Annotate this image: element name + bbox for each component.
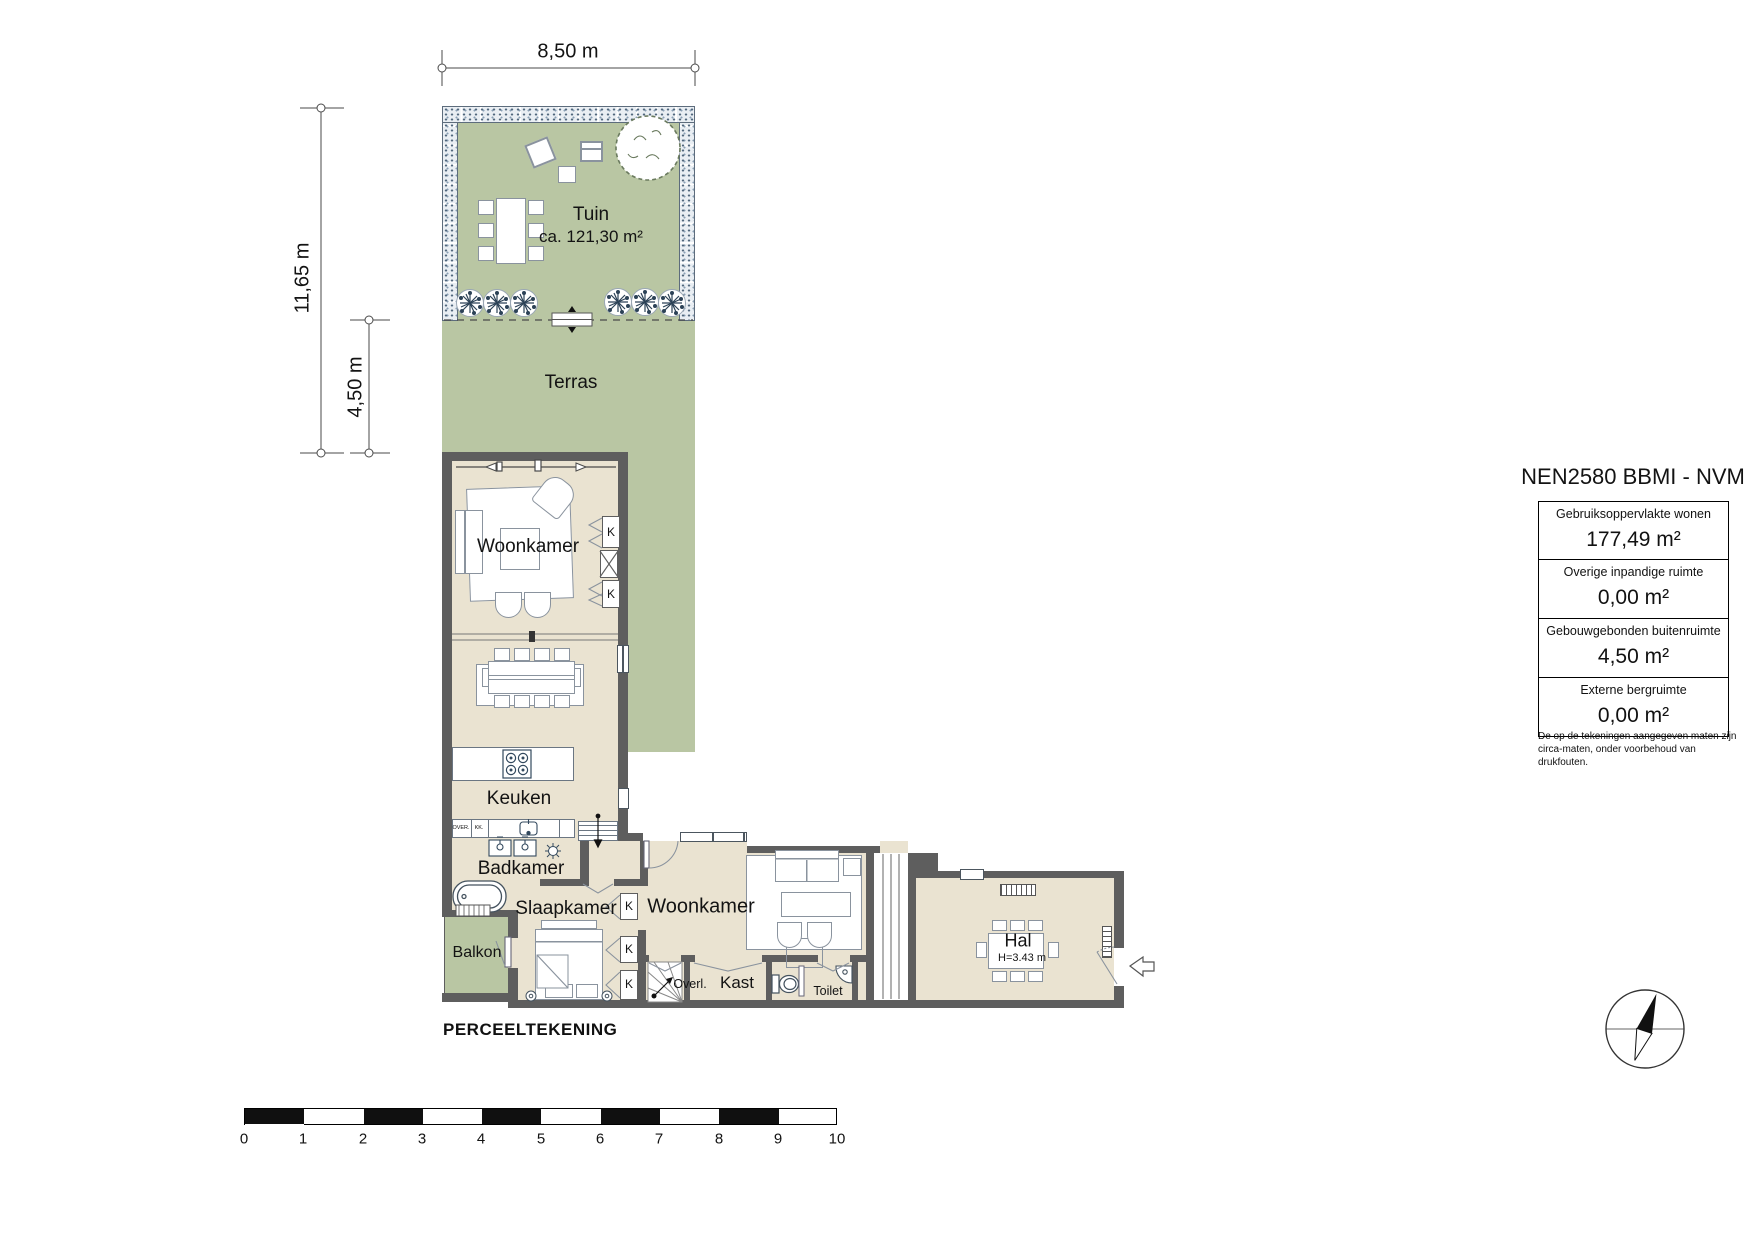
- wall-top-upper: [442, 452, 628, 461]
- wall-strip-a: [646, 955, 649, 962]
- wall-balcony-bottom: [442, 993, 518, 1002]
- legend-title: NEN2580 BBMI - NVM: [1521, 464, 1745, 490]
- window-band-living2: [680, 832, 747, 842]
- room-label-hall: Hal: [1004, 931, 1031, 952]
- hall-chair: [1010, 971, 1025, 982]
- terrace-label: Terras: [545, 372, 598, 394]
- scale-segment: [364, 1109, 423, 1124]
- scale-segment: [719, 1109, 778, 1124]
- scale-segment: [245, 1109, 304, 1124]
- hall-chair: [976, 942, 987, 958]
- scale-tick: 2: [359, 1131, 367, 1148]
- wall-strip-d: [850, 955, 866, 962]
- living2-coffee-table: [781, 892, 851, 917]
- garden-terrace-area: [442, 106, 695, 455]
- scale-tick: 5: [537, 1131, 545, 1148]
- scale-segment: [660, 1109, 719, 1124]
- row-value: 0,00 m²: [1539, 579, 1728, 610]
- scale-segment: [541, 1109, 600, 1124]
- wall-passage-right: [640, 841, 648, 886]
- bed-pillow: [545, 984, 573, 998]
- window-hall: [960, 869, 984, 880]
- wall-bath-bed-a: [540, 879, 582, 886]
- row-label: Overige inpandige ruimte: [1539, 560, 1728, 579]
- hall-radiator: [1102, 926, 1112, 958]
- dining-chair: [534, 648, 550, 661]
- wall-strip-b: [681, 955, 695, 962]
- scale-bar: [244, 1108, 837, 1125]
- dining-table: [488, 661, 575, 694]
- stair-strip: [874, 853, 908, 1000]
- oven-label: OVER.: [452, 825, 469, 831]
- fridge-label: KK.: [475, 825, 484, 831]
- scale-tick: 3: [418, 1131, 426, 1148]
- closet-k-label: K: [607, 525, 615, 539]
- scale-tick: 7: [655, 1131, 663, 1148]
- garden-table: [496, 198, 526, 264]
- dim-top-width: 8,50 m: [537, 41, 598, 64]
- living2-side-table: [843, 858, 861, 876]
- dining-chair: [494, 695, 510, 708]
- scale-tick: 9: [774, 1131, 782, 1148]
- scale-tick: 4: [477, 1131, 485, 1148]
- mask-above-hall: [908, 841, 1124, 871]
- closet-k-label: K: [607, 587, 615, 601]
- wall-wing-right-b: [1114, 986, 1124, 1008]
- compass-icon: [1606, 990, 1684, 1068]
- wall-kcolumn-right: [638, 930, 646, 1008]
- disclaimer-line2: circa-maten, onder voorbehoud van drukfo…: [1538, 744, 1696, 768]
- table-row: Externe bergruimte 0,00 m²: [1538, 678, 1729, 737]
- table-row: Gebruiksoppervlakte wonen 177,49 m²: [1538, 501, 1729, 560]
- dim-terrace-depth: 4,50 m: [345, 356, 368, 417]
- kitchen-steps: [578, 821, 618, 841]
- table-row: Gebouwgebonden buitenruimte 4,50 m²: [1538, 619, 1729, 678]
- scale-segment: [601, 1109, 660, 1124]
- dining-chair: [554, 695, 570, 708]
- kitchen-island: [452, 747, 574, 781]
- hall-chair: [1048, 942, 1059, 958]
- room-label-living2: Woonkamer: [647, 896, 754, 919]
- garden-bbq: [580, 141, 603, 162]
- bed-pillow: [576, 984, 598, 998]
- room-label-bedroom: Slaapkamer: [515, 898, 616, 920]
- scale-tick: 8: [715, 1131, 723, 1148]
- garden-chair: [528, 200, 544, 215]
- wall-kast-right: [766, 962, 772, 1008]
- disclaimer-line1: De op de tekeningen aangegeven maten zij…: [1538, 731, 1736, 742]
- wall-balcony-right-a: [508, 917, 518, 938]
- plan-linework: [0, 0, 1754, 1239]
- entrance-gap: [1114, 948, 1124, 986]
- bed-headshelf: [541, 920, 597, 929]
- wall-wing-right-a: [1114, 871, 1124, 948]
- wall-left-upper: [442, 452, 452, 910]
- kitchen-counter: [452, 819, 575, 838]
- room-label-toilet: Toilet: [813, 984, 842, 998]
- row-label: Externe bergruimte: [1539, 678, 1728, 697]
- row-label: Gebouwgebonden buitenruimte: [1539, 619, 1728, 638]
- floorplan-canvas: 8,50 m 11,65 m 4,50 m Tuin ca. 121,30 m²…: [0, 0, 1754, 1239]
- row-value: 4,50 m²: [1539, 638, 1728, 669]
- hall-chair: [1010, 920, 1025, 931]
- room-label-kitchen: Keuken: [487, 788, 551, 810]
- living2-sofa: [775, 850, 839, 882]
- scale-segment: [482, 1109, 541, 1124]
- terrace-right-strip: [628, 455, 695, 752]
- hall-chair: [1028, 971, 1043, 982]
- dining-chair: [514, 695, 530, 708]
- shaft-box: [600, 550, 618, 578]
- window-kitchen: [618, 788, 629, 809]
- garden-chair: [478, 246, 494, 261]
- nen2580-table: Gebruiksoppervlakte wonen 177,49 m² Over…: [1538, 501, 1729, 737]
- dining-table-end: [574, 668, 581, 687]
- living2-chair: [807, 922, 832, 948]
- garden-chair: [528, 246, 544, 261]
- hedge-right: [679, 122, 695, 321]
- wall-stairs-right: [908, 853, 916, 1008]
- room-label-living1: Woonkamer: [477, 536, 579, 558]
- living2-chair: [777, 922, 802, 948]
- hall-chair: [1028, 920, 1043, 931]
- scale-segment: [423, 1109, 482, 1124]
- room-label-balcony: Balkon: [453, 944, 502, 962]
- wall-bottom: [508, 1000, 1124, 1008]
- wall-balcony-top: [442, 910, 518, 917]
- row-value: 177,49 m²: [1539, 521, 1728, 552]
- living1-chair: [524, 592, 551, 618]
- room-label-bathroom: Badkamer: [478, 858, 565, 880]
- row-value: 0,00 m²: [1539, 697, 1728, 728]
- garden-chair: [478, 223, 494, 238]
- garden-area-label: ca. 121,30 m²: [539, 227, 643, 247]
- scale-segment: [245, 1124, 304, 1139]
- dining-chair: [494, 648, 510, 661]
- wall-stairs-left: [866, 846, 874, 1008]
- scale-tick: 0: [240, 1131, 248, 1148]
- closet-k-label: K: [625, 942, 633, 956]
- dining-chair: [534, 695, 550, 708]
- table-row: Overige inpandige ruimte 0,00 m²: [1538, 560, 1729, 619]
- hall-doormat: [1000, 884, 1036, 896]
- dining-chair: [514, 648, 530, 661]
- closet-k-label: K: [625, 977, 633, 991]
- scale-tick: 6: [596, 1131, 604, 1148]
- wall-wingtop-a: [628, 833, 643, 841]
- scale-tick: 10: [829, 1131, 846, 1148]
- garden-side-table: [558, 166, 576, 183]
- hall-chair: [992, 920, 1007, 931]
- window-dining: [617, 645, 629, 673]
- closet-k-label: K: [625, 899, 633, 913]
- garden-chair: [478, 200, 494, 215]
- legend-disclaimer: De op de tekeningen aangegeven maten zij…: [1538, 730, 1748, 769]
- scale-segment: [304, 1109, 363, 1124]
- scale-tick: 1: [299, 1131, 307, 1148]
- row-label: Gebruiksoppervlakte wonen: [1539, 502, 1728, 521]
- room-label-closet: Kast: [720, 973, 754, 993]
- wall-toilet-right: [852, 962, 858, 1008]
- dining-table-end: [482, 668, 489, 687]
- plot-title: PERCEELTEKENING: [443, 1020, 617, 1040]
- living1-chair: [495, 592, 522, 618]
- entrance-arrow-icon: [1130, 957, 1154, 976]
- dining-chair: [554, 648, 570, 661]
- hall-height-label: H=3.43 m: [998, 952, 1046, 964]
- garden-label: Tuin: [573, 204, 609, 226]
- dim-left-height: 11,65 m: [292, 243, 315, 314]
- hedge-top: [442, 106, 695, 123]
- room-label-landing: Overl.: [673, 977, 706, 991]
- hedge-left: [442, 122, 458, 321]
- hall-chair: [992, 971, 1007, 982]
